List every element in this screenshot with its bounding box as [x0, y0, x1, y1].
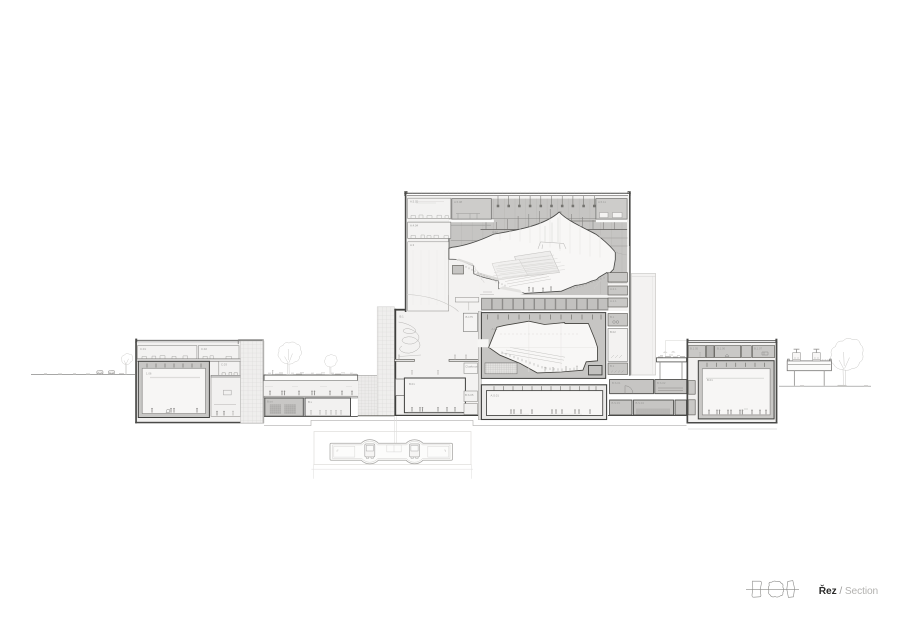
svg-text:B.02: B.02: [610, 330, 616, 334]
svg-text:B.x: B.x: [308, 400, 313, 404]
svg-text:A.2.1: A.2.1: [610, 287, 617, 291]
svg-text:C.01: C.01: [140, 347, 146, 351]
svg-text:B.S.05: B.S.05: [465, 393, 474, 397]
svg-text:A.05: A.05: [492, 327, 498, 331]
svg-text:B.S.01: B.S.01: [612, 381, 621, 385]
svg-text:B.S.02: B.S.02: [657, 381, 666, 385]
svg-text:A.4.04: A.4.04: [410, 223, 419, 227]
svg-text:B.175: B.175: [466, 315, 474, 319]
svg-text:C.02: C.02: [201, 347, 207, 351]
svg-text:B.1: B.1: [400, 315, 405, 319]
svg-text:Cloakroom: Cloakroom: [465, 364, 479, 368]
svg-text:B.S.04: B.S.04: [636, 401, 645, 405]
svg-text:B.01: B.01: [409, 382, 415, 386]
svg-text:B.1.07: B.1.07: [754, 347, 763, 351]
svg-text:A.1.1: A.1.1: [610, 299, 617, 303]
svg-text:B.1: B.1: [610, 364, 615, 368]
svg-text:A.S.01: A.S.01: [491, 394, 500, 398]
svg-text:B.1.05: B.1.05: [690, 347, 699, 351]
svg-text:B.txt: B.txt: [267, 399, 273, 403]
svg-text:A.5.08: A.5.08: [454, 200, 463, 204]
svg-text:Řez / Section: Řez / Section: [819, 584, 878, 597]
svg-text:A.02: A.02: [492, 230, 498, 234]
svg-text:A.3: A.3: [410, 243, 415, 247]
svg-text:B.1.06: B.1.06: [717, 347, 726, 351]
svg-text:A.5.11: A.5.11: [598, 200, 606, 204]
svg-text:1.06: 1.06: [146, 372, 152, 376]
svg-text:B.1: B.1: [610, 315, 615, 319]
svg-text:C.03: C.03: [221, 363, 227, 367]
svg-text:B.S.03: B.S.03: [612, 401, 621, 405]
